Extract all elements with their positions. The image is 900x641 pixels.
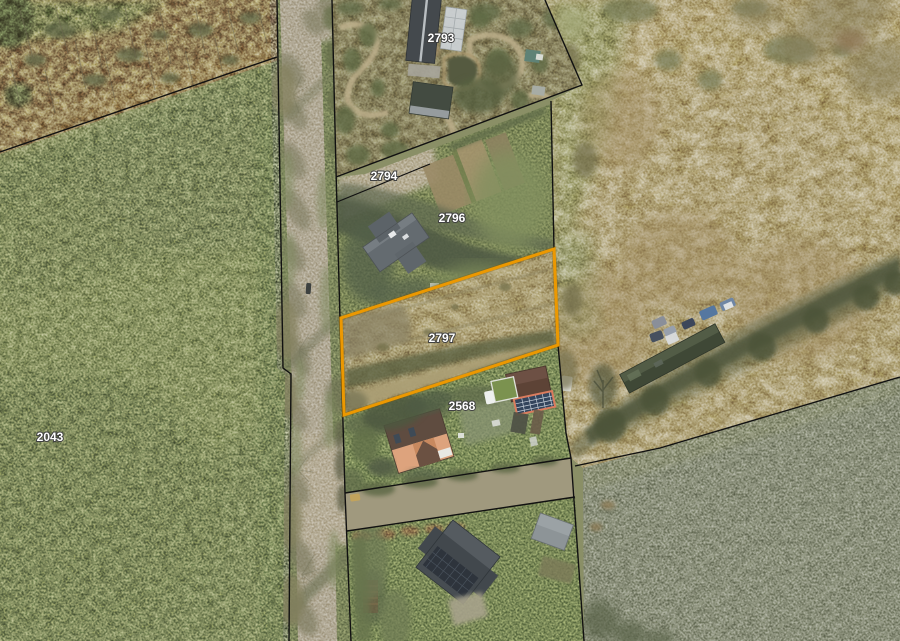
svg-text:2043: 2043 xyxy=(37,430,64,444)
svg-text:2793: 2793 xyxy=(428,31,455,45)
svg-text:2794: 2794 xyxy=(371,169,398,183)
svg-text:2568: 2568 xyxy=(449,399,476,413)
svg-text:2796: 2796 xyxy=(439,211,466,225)
svg-text:2797: 2797 xyxy=(429,331,456,345)
